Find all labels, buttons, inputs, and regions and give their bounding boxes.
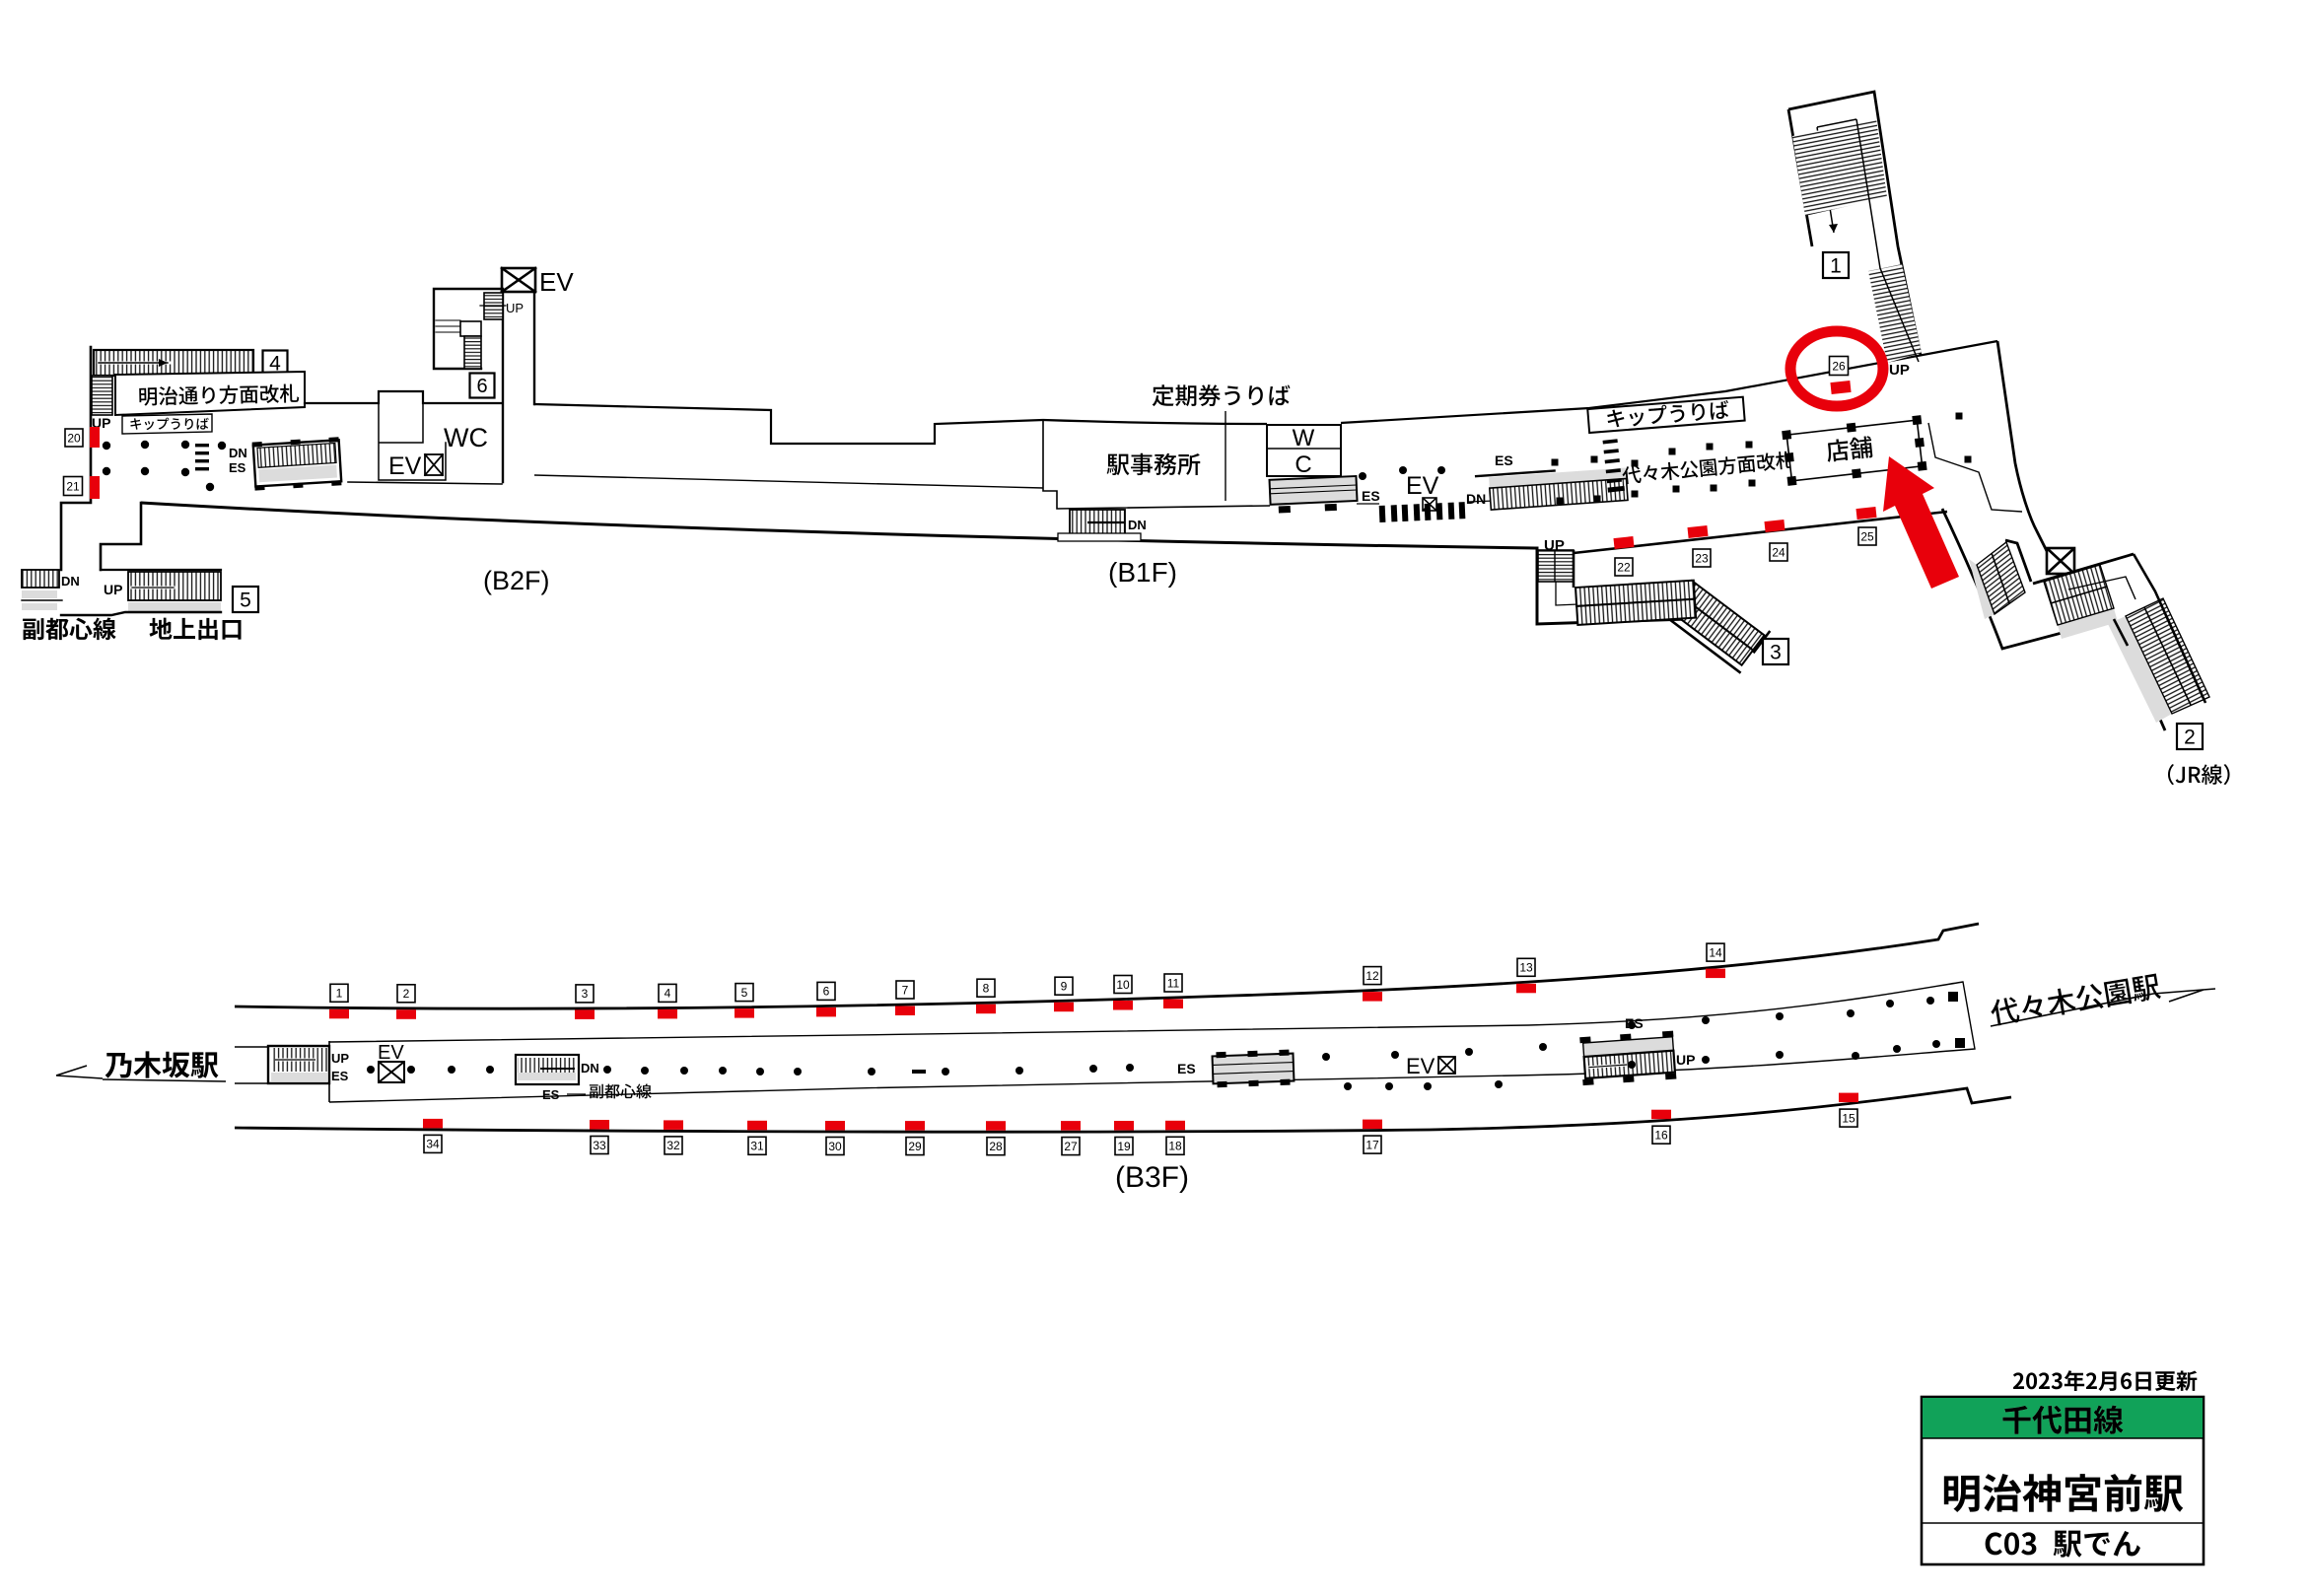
svg-text:30: 30 xyxy=(828,1140,842,1153)
svg-text:28: 28 xyxy=(989,1140,1003,1153)
svg-text:ES: ES xyxy=(1495,452,1513,468)
svg-text:EV: EV xyxy=(378,1042,404,1064)
svg-text:W: W xyxy=(1293,425,1315,451)
svg-text:DN: DN xyxy=(1466,491,1486,507)
svg-text:C: C xyxy=(1295,451,1311,478)
svg-text:31: 31 xyxy=(750,1140,764,1153)
svg-text:UP: UP xyxy=(1889,362,1910,379)
svg-text:23: 23 xyxy=(1695,551,1709,565)
svg-text:DN: DN xyxy=(1128,518,1147,532)
svg-text:DN: DN xyxy=(61,574,80,589)
svg-text:24: 24 xyxy=(1772,545,1785,559)
svg-text:1: 1 xyxy=(1830,255,1842,278)
svg-text:5: 5 xyxy=(240,590,251,612)
svg-text:UP: UP xyxy=(506,301,524,315)
svg-text:(B2F): (B2F) xyxy=(483,566,550,595)
svg-text:DN: DN xyxy=(229,446,247,460)
svg-text:6: 6 xyxy=(823,985,830,999)
svg-text:(B1F): (B1F) xyxy=(1108,557,1177,588)
svg-text:ES: ES xyxy=(542,1087,560,1102)
svg-text:4: 4 xyxy=(665,987,671,1001)
svg-text:16: 16 xyxy=(1654,1129,1668,1143)
svg-text:ES: ES xyxy=(331,1069,349,1083)
svg-text:2: 2 xyxy=(403,987,410,1001)
svg-text:EV: EV xyxy=(1406,472,1439,500)
svg-text:7: 7 xyxy=(902,983,909,997)
svg-text:ES: ES xyxy=(1177,1061,1196,1076)
svg-text:15: 15 xyxy=(1842,1111,1855,1125)
svg-text:17: 17 xyxy=(1365,1138,1379,1151)
svg-text:11: 11 xyxy=(1167,976,1180,990)
svg-text:UP: UP xyxy=(331,1051,349,1066)
svg-text:ES: ES xyxy=(229,460,246,475)
svg-text:DN: DN xyxy=(581,1061,599,1076)
svg-text:10: 10 xyxy=(1116,978,1130,992)
svg-text:29: 29 xyxy=(908,1140,922,1153)
svg-text:34: 34 xyxy=(426,1138,440,1151)
svg-text:25: 25 xyxy=(1860,529,1874,543)
svg-text:UP: UP xyxy=(1676,1052,1695,1068)
svg-text:26: 26 xyxy=(1832,359,1846,373)
svg-text:9: 9 xyxy=(1061,980,1068,994)
svg-text:EV: EV xyxy=(1406,1054,1435,1078)
svg-text:3: 3 xyxy=(1770,642,1782,664)
svg-text:27: 27 xyxy=(1064,1140,1078,1153)
svg-text:21: 21 xyxy=(66,479,80,493)
svg-text:33: 33 xyxy=(593,1139,606,1152)
svg-text:3: 3 xyxy=(582,987,589,1001)
svg-text:13: 13 xyxy=(1519,961,1533,975)
svg-text:6: 6 xyxy=(476,376,487,397)
svg-text:20: 20 xyxy=(67,431,81,445)
svg-text:14: 14 xyxy=(1709,945,1722,959)
svg-text:12: 12 xyxy=(1365,969,1379,983)
svg-text:5: 5 xyxy=(741,986,748,1000)
svg-text:EV: EV xyxy=(388,452,422,480)
svg-text:(B3F): (B3F) xyxy=(1115,1161,1189,1194)
svg-text:19: 19 xyxy=(1117,1140,1131,1153)
svg-text:8: 8 xyxy=(983,982,990,996)
svg-text:WC: WC xyxy=(444,423,488,452)
svg-text:32: 32 xyxy=(666,1139,680,1152)
svg-text:22: 22 xyxy=(1617,560,1631,574)
svg-text:ES: ES xyxy=(1362,488,1380,504)
svg-text:1: 1 xyxy=(336,987,343,1001)
svg-text:2: 2 xyxy=(2184,727,2196,749)
svg-text:EV: EV xyxy=(539,267,574,297)
svg-text:UP: UP xyxy=(104,582,122,597)
svg-text:18: 18 xyxy=(1168,1140,1182,1153)
